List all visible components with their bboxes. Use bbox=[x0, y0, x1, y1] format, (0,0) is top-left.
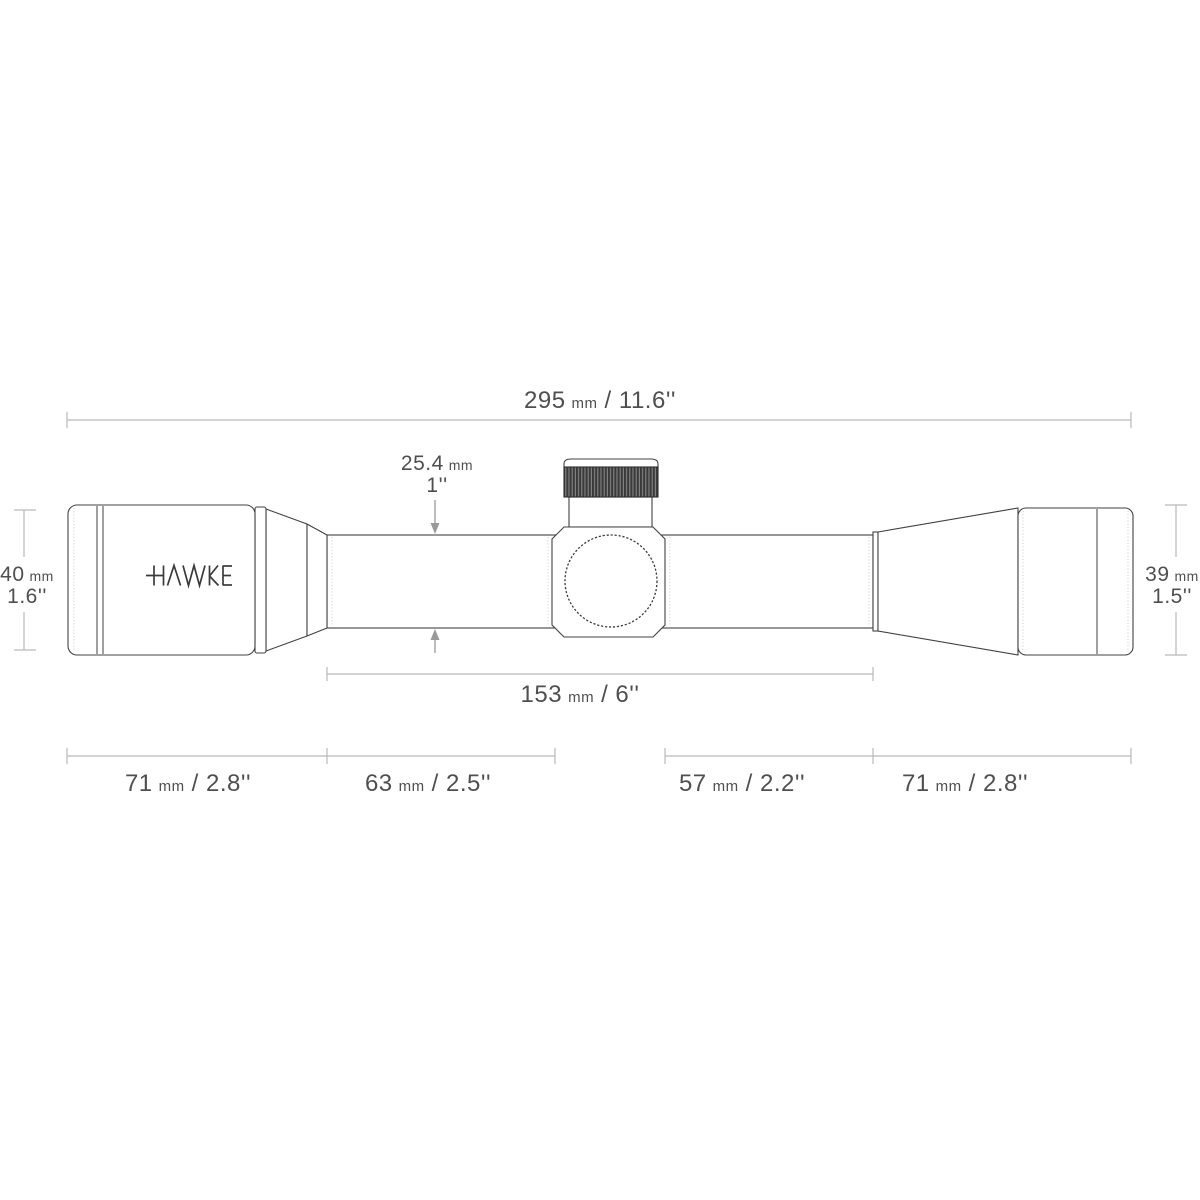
eyepiece-diameter-label: 40mm bbox=[0, 563, 54, 586]
objective-body bbox=[1018, 508, 1133, 655]
eyepiece-cone-inner bbox=[307, 524, 327, 636]
dimension-objective-diameter: 39mm 1.5'' bbox=[1145, 505, 1199, 655]
overall-length-label: 295mm/ 11.6'' bbox=[524, 387, 676, 414]
bell-step-ring bbox=[873, 532, 878, 631]
eyepiece-lock-ring bbox=[255, 507, 266, 653]
tube-diameter-label-inches: 1'' bbox=[426, 474, 447, 497]
arrow-up-icon bbox=[431, 629, 440, 640]
turret-knob-base bbox=[569, 497, 652, 527]
scope-drawing bbox=[68, 459, 1133, 655]
windage-turret-cap bbox=[565, 535, 657, 627]
eyepiece-body bbox=[68, 505, 255, 655]
segment-saddle-right-label: 57mm/ 2.2'' bbox=[679, 770, 805, 797]
turret-knob-cap bbox=[564, 459, 658, 467]
dimension-overall-length: 295mm/ 11.6'' bbox=[67, 387, 1131, 428]
objective-diameter-label: 39mm bbox=[1145, 563, 1199, 586]
segment-saddle-left-label: 63mm/ 2.5'' bbox=[365, 770, 491, 797]
dimension-bottom-segments: 71mm/ 2.8'' 63mm/ 2.5'' 57mm/ 2.2'' 71mm… bbox=[67, 748, 1131, 797]
tube-diameter-label: 25.4mm bbox=[401, 452, 473, 475]
dimension-eyepiece-diameter: 40mm 1.6'' bbox=[0, 510, 54, 650]
diagram-canvas: 295mm/ 11.6'' 25.4mm 1'' 40mm 1.6'' 39mm… bbox=[0, 0, 1200, 1200]
turret-knob-knurl bbox=[564, 467, 658, 497]
objective-diameter-label-inches: 1.5'' bbox=[1152, 585, 1192, 608]
segment-objective-bell-label: 71mm/ 2.8'' bbox=[902, 770, 1028, 797]
mount-length-label: 153mm/ 6'' bbox=[521, 681, 640, 708]
segment-eyepiece-label: 71mm/ 2.8'' bbox=[125, 770, 251, 797]
eyepiece-diameter-label-inches: 1.6'' bbox=[7, 585, 47, 608]
eyepiece-cone-outer bbox=[266, 509, 307, 651]
arrow-down-icon bbox=[431, 523, 440, 534]
scope-dimension-diagram: 295mm/ 11.6'' 25.4mm 1'' 40mm 1.6'' 39mm… bbox=[0, 0, 1200, 1200]
objective-bell-cone bbox=[878, 508, 1018, 655]
dimension-mount-length: 153mm/ 6'' bbox=[327, 667, 873, 708]
